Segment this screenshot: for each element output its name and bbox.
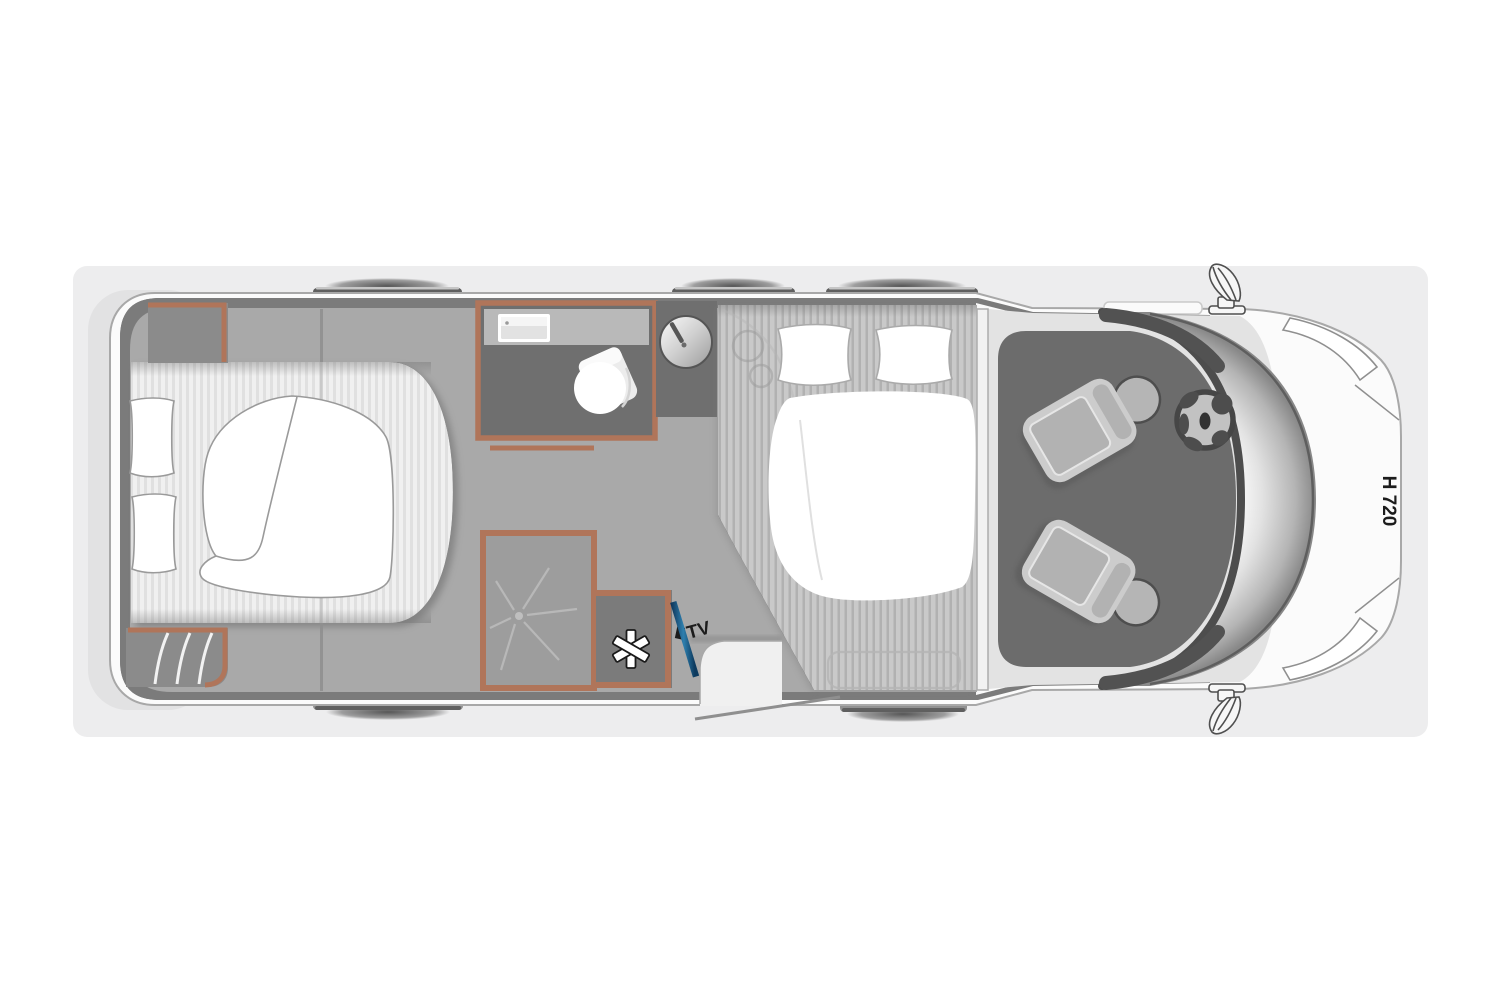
svg-text:H 720: H 720 xyxy=(1378,476,1399,527)
